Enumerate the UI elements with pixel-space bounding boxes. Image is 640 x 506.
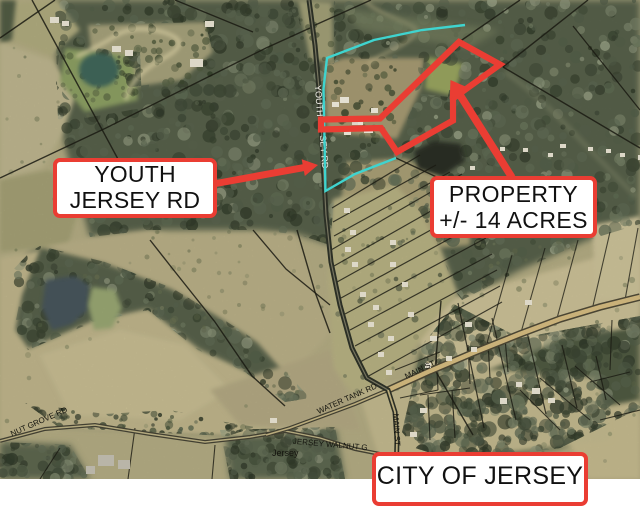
svg-text:MAIN ST: MAIN ST	[391, 413, 402, 446]
svg-text:Jersey: Jersey	[272, 448, 299, 458]
